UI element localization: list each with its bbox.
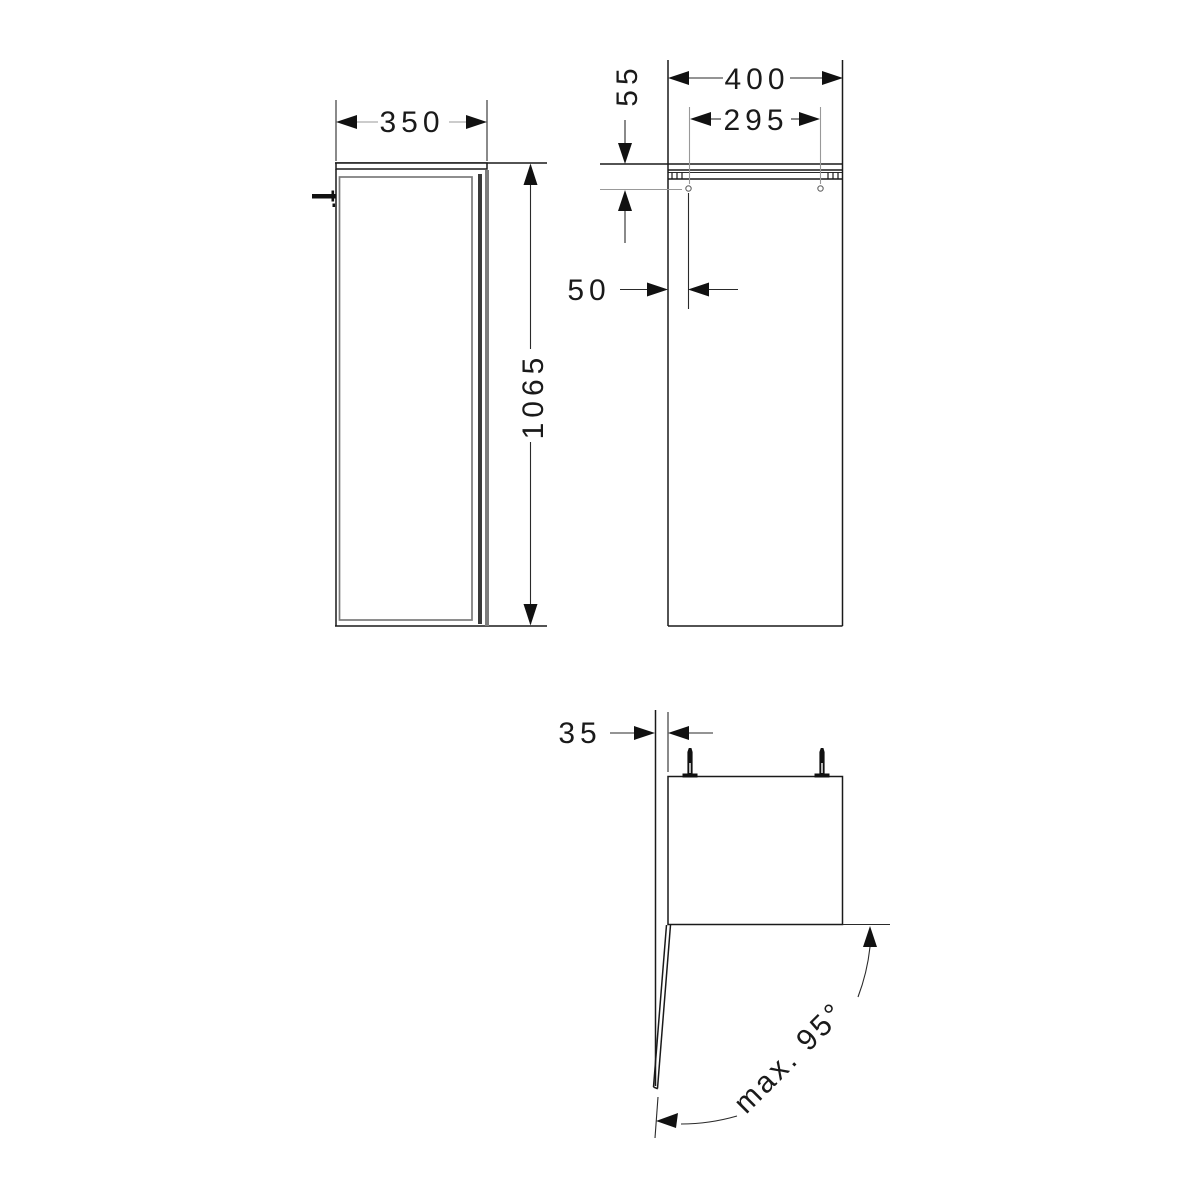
side-wall-rail-band [485,170,489,626]
angle-label: max. 95° [728,996,852,1120]
angle-arc-lower [681,1116,737,1124]
side-top-panel [336,163,487,169]
dim-55-arrow-up [618,190,632,211]
dim-295-label: 295 [723,104,788,137]
dim-400-arrow-right [822,71,843,85]
handle-screw [333,204,336,208]
front-view [600,60,843,626]
wall-hook-left [683,748,698,778]
dim-35-arrow-left [668,726,689,740]
dim-400-arrow-left [668,71,689,85]
mount-hole-right [818,186,823,191]
dim-295-arrow-left [690,112,711,126]
dim-1065-arrow-down [524,604,538,626]
door-tip-ext-line [655,1097,658,1138]
side-back-panel-band [478,174,482,624]
dim-35: 35 [558,717,713,750]
dim-50-arrow-right [647,283,668,297]
dim-50: 50 [567,193,738,309]
dim-1065-label: 1065 [517,353,550,440]
dim-55: 55 [600,63,682,243]
wall-hook-right [815,748,830,778]
dim-55-label: 55 [611,63,644,106]
dim-55-arrow-down [618,143,632,164]
mount-hole-left [686,186,691,191]
angle-arc-upper [858,947,870,997]
dim-350-label: 350 [379,106,444,139]
dim-295-arrow-right [799,112,820,126]
dim-angle: max. 95° [656,926,877,1128]
handle-mount [332,191,335,202]
rail-brackets [672,173,838,180]
plan-cabinet-body [668,777,843,925]
door-handle [312,191,336,208]
dim-400-label: 400 [724,63,789,96]
dim-50-arrow-left [688,283,709,297]
angle-arrow-left [656,1113,678,1128]
dim-1065-arrow-up [524,164,538,186]
dim-350-arrow-left [336,115,357,129]
technical-drawing-page: 350 1065 400 [0,0,1200,1200]
dim-400: 400 [668,63,843,96]
dim-35-arrow-right [634,726,655,740]
dim-50-label: 50 [567,274,610,307]
dim-35-label: 35 [558,717,601,750]
angle-arrow-up [863,926,877,947]
side-door-panel [340,177,473,620]
dim-350: 350 [336,100,487,161]
dim-1065: 1065 [517,164,550,626]
dim-350-arrow-right [466,115,487,129]
side-view [312,163,547,626]
cabinet-dimension-drawing: 350 1065 400 [0,0,1200,1200]
